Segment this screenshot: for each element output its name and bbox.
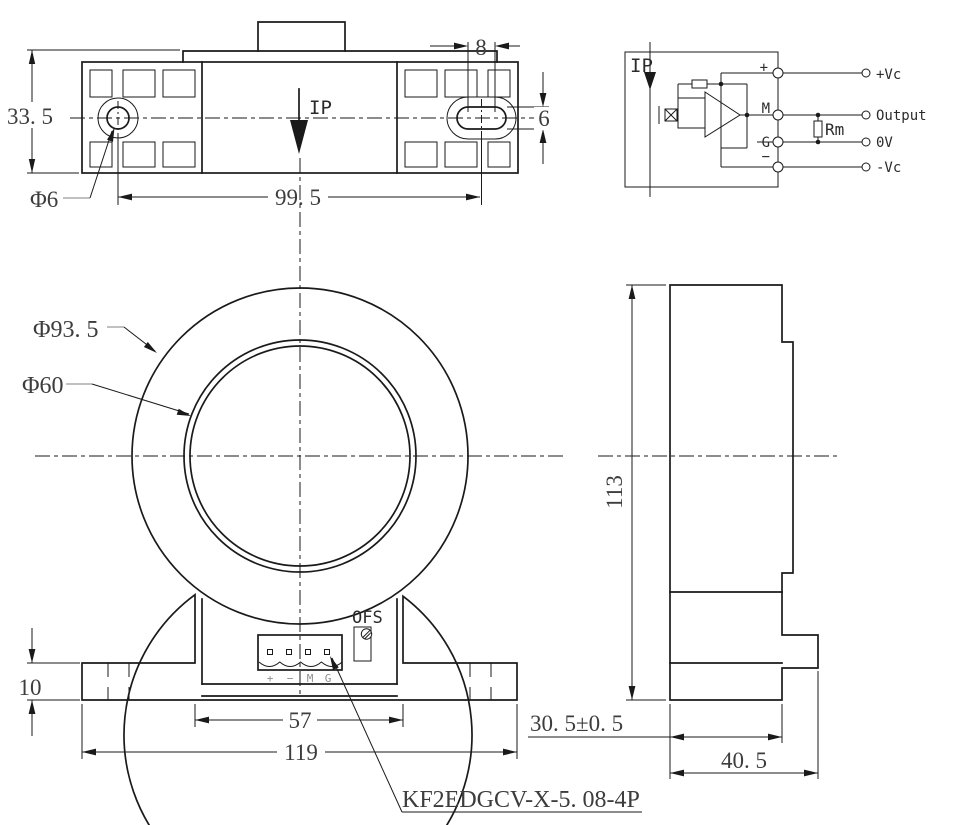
ofs-label: OFS — [352, 608, 383, 628]
pin-plus-label: + — [267, 672, 274, 685]
dim-33-5-label: 33. 5 — [7, 104, 53, 129]
dim-phi60-label: Φ60 — [22, 373, 64, 399]
ip-arrow-icon — [290, 89, 308, 154]
side-view — [598, 285, 838, 700]
dim-57-label: 57 — [289, 708, 312, 733]
side-outline — [670, 285, 818, 700]
output-label: Output — [876, 108, 927, 124]
dim-30-5-label: 30. 5±0. 5 — [530, 711, 623, 736]
dim-phi6-label: Φ6 — [30, 187, 58, 212]
circuit-diagram: IP — [625, 42, 927, 197]
ofs-potentiometer — [354, 627, 372, 661]
pin-g-label: G — [325, 672, 332, 685]
dim-phi93-5-label: Φ93. 5 — [33, 317, 99, 343]
dim-6-label: 6 — [538, 106, 550, 131]
vee-label: -Vc — [876, 160, 901, 176]
vcc-label: +Vc — [876, 67, 901, 83]
dim-119-label: 119 — [284, 740, 318, 765]
terminal-minus-label: − — [762, 149, 770, 165]
dim-113-label: 113 — [602, 475, 627, 509]
dim-8-label: 8 — [475, 35, 487, 60]
terminal-plus-label: + — [760, 60, 768, 76]
drawing-sheet: IP 33. 5 Φ6 99. 5 8 — [0, 0, 954, 825]
front-view-dimensions: Φ93. 5 Φ60 10 57 119 KF2EDGCV-X-5. — [19, 317, 643, 813]
side-view-dimensions: 113 30. 5±0. 5 40. 5 — [528, 285, 818, 779]
dim-99-5-label: 99. 5 — [275, 185, 321, 210]
pin-m-label: M — [307, 672, 314, 685]
opamp-icon — [705, 92, 740, 137]
feedback-resistor-icon — [678, 80, 747, 148]
dim-40-5-label: 40. 5 — [721, 748, 767, 773]
pin-minus-label: − — [287, 672, 294, 685]
circuit-ip-label: IP — [630, 55, 653, 77]
rm-label: Rm — [825, 120, 844, 139]
hall-sensor-icon — [659, 98, 705, 128]
engineering-drawing: IP 33. 5 Φ6 99. 5 8 — [0, 0, 954, 825]
terminal-m-label: M — [762, 101, 770, 117]
dim-10-label: 10 — [19, 675, 42, 700]
connector-model-label: KF2EDGCV-X-5. 08-4P — [402, 787, 640, 813]
output-circles — [862, 69, 870, 171]
rm-resistor-icon — [814, 113, 822, 145]
top-view-ip-label: IP — [309, 97, 332, 119]
zero-v-label: 0V — [876, 135, 893, 151]
